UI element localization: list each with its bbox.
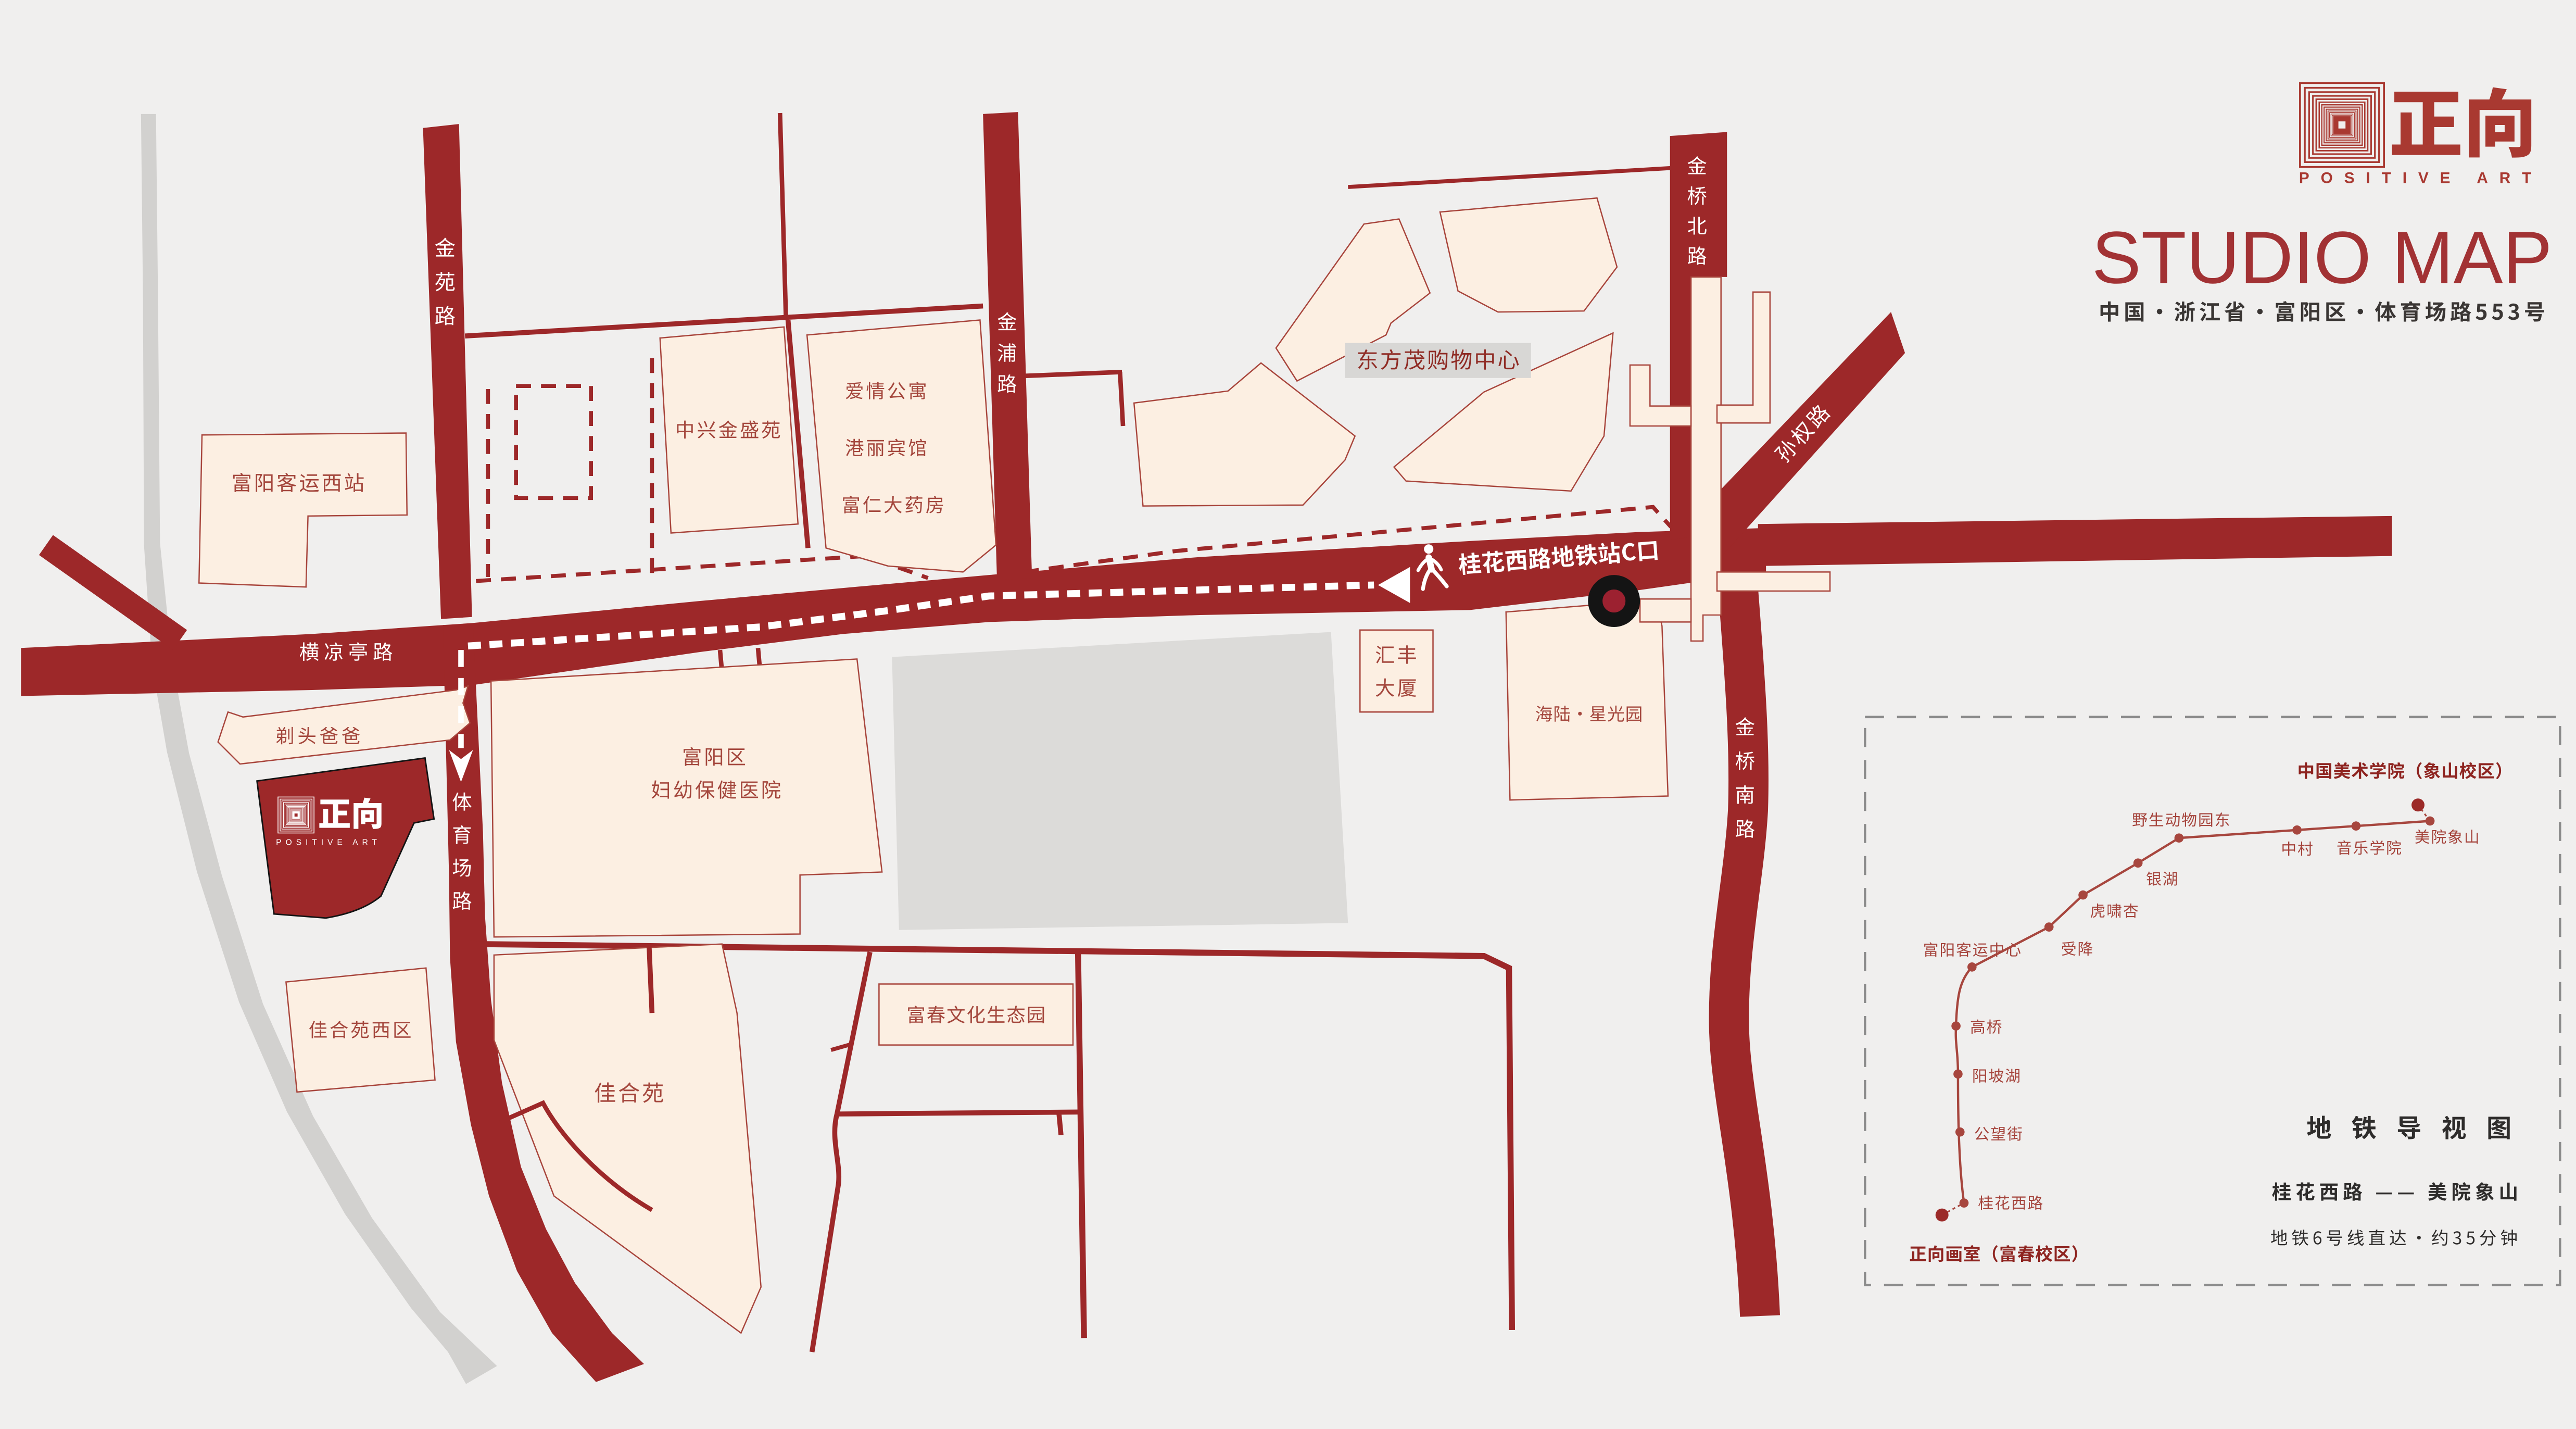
svg-text:POSITIVE ART: POSITIVE ART	[276, 838, 381, 847]
svg-text:STUDIO MAP: STUDIO MAP	[2092, 216, 2552, 299]
svg-text:POSITIVE ART: POSITIVE ART	[2299, 169, 2543, 186]
